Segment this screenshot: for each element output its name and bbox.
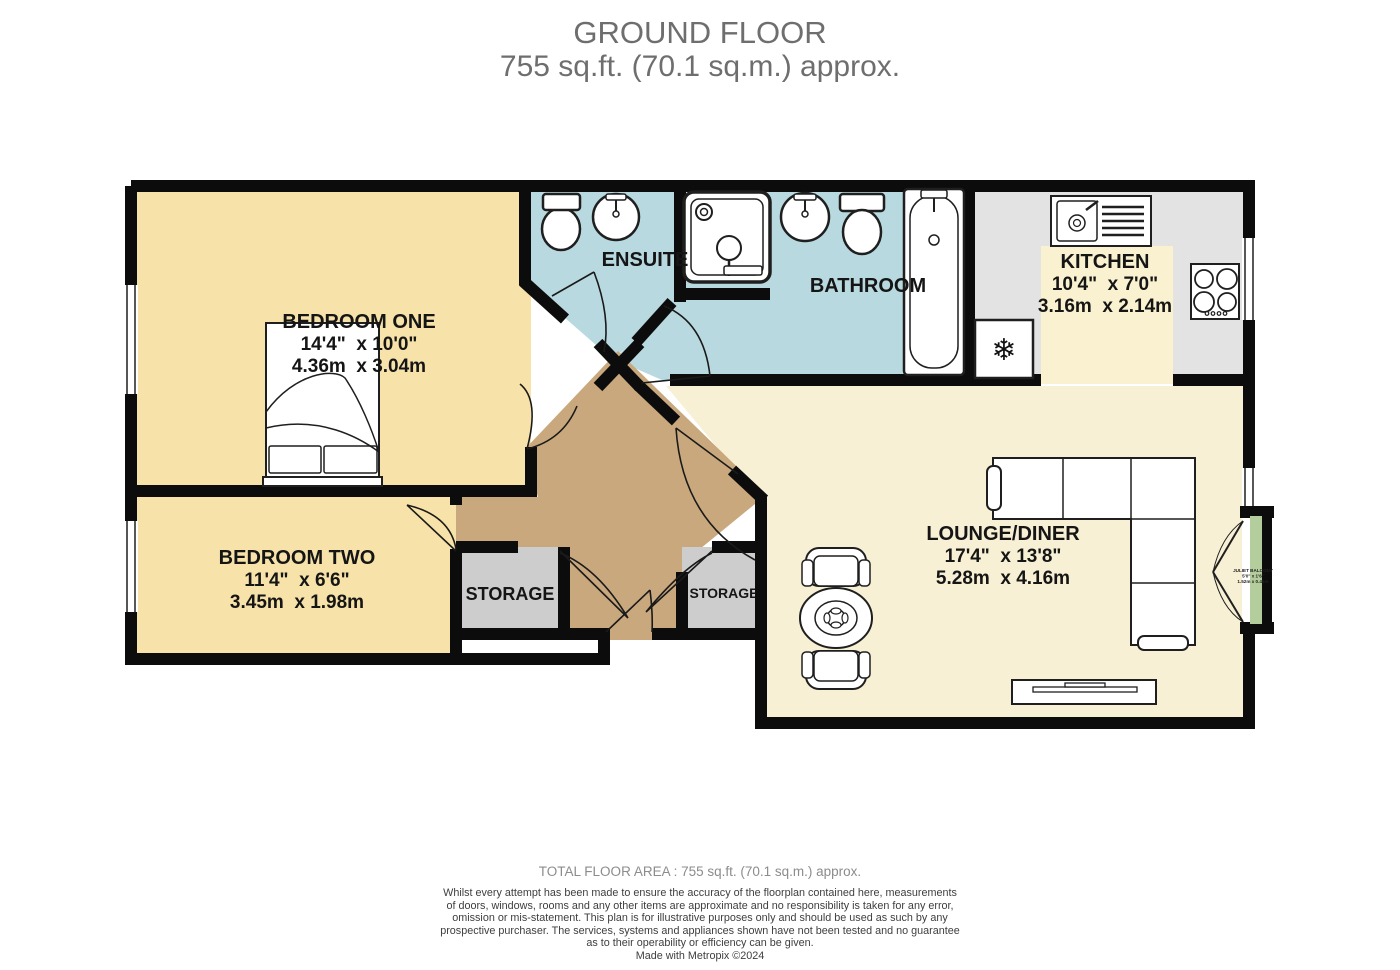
dining-table-icon <box>800 588 872 648</box>
kitchen-sink-icon <box>1051 196 1151 246</box>
label-kitchen-imperial: 10'4" x 7'0" <box>1052 274 1158 295</box>
label-kitchen: KITCHEN <box>1061 251 1150 273</box>
fridge-icon: ❄ <box>975 320 1033 378</box>
svg-text:❄: ❄ <box>991 334 1016 367</box>
bathroom-toilet-icon <box>840 194 884 254</box>
label-storage-right: STORAGE <box>690 585 759 601</box>
juliet-balcony-imperial: 5'0" x 1'6" <box>1242 574 1264 579</box>
label-bedroom-two: BEDROOM TWO <box>219 547 376 569</box>
window-lounge-icon <box>1242 468 1256 510</box>
credit-line: Made with Metropix ©2024 <box>0 950 1400 963</box>
bathroom-sink-icon <box>781 193 829 241</box>
total-floor-area: TOTAL FLOOR AREA : 755 sq.ft. (70.1 sq.m… <box>0 864 1400 879</box>
dining-chair-icon <box>802 548 870 586</box>
disclaimer-line: Whilst every attempt has been made to en… <box>0 887 1400 900</box>
ensuite-toilet-icon <box>542 194 580 250</box>
window-kitchen-icon <box>1242 238 1256 320</box>
disclaimer-line: as to their operability or efficiency ca… <box>0 937 1400 950</box>
label-bedroom-one-imperial: 14'4" x 10'0" <box>301 334 418 355</box>
ensuite-sink-icon <box>593 194 639 240</box>
disclaimer-line: of doors, windows, rooms and any other i… <box>0 900 1400 913</box>
dining-chair-icon <box>802 651 870 689</box>
hob-icon <box>1191 264 1239 319</box>
label-lounge-diner-imperial: 17'4" x 13'8" <box>945 546 1062 567</box>
label-kitchen-metric: 3.16m x 2.14m <box>1038 296 1172 317</box>
floorplan-page: GROUND FLOOR 755 sq.ft. (70.1 sq.m.) app… <box>0 0 1400 970</box>
juliet-balcony-label: JULIET BALCONY <box>1233 568 1273 573</box>
label-bathroom: BATHROOM <box>810 275 926 297</box>
label-bedroom-two-imperial: 11'4" x 6'6" <box>244 570 349 591</box>
tv-unit-icon <box>1012 680 1156 704</box>
label-ensuite: ENSUITE <box>602 249 689 271</box>
window-bedroom-one-icon <box>124 285 138 394</box>
label-bedroom-two-metric: 3.45m x 1.98m <box>230 592 364 613</box>
label-lounge-diner: LOUNGE/DINER <box>926 523 1080 545</box>
footer: TOTAL FLOOR AREA : 755 sq.ft. (70.1 sq.m… <box>0 864 1400 962</box>
floorplan-drawing: ❄ <box>0 0 1400 970</box>
juliet-balcony-metric: 1.52m x 0.46m <box>1237 579 1268 584</box>
disclaimer: Whilst every attempt has been made to en… <box>0 887 1400 962</box>
label-bedroom-one: BEDROOM ONE <box>282 311 435 333</box>
disclaimer-line: omission or mis-statement. This plan is … <box>0 912 1400 925</box>
window-bedroom-two-icon <box>124 521 138 612</box>
disclaimer-line: prospective purchaser. The services, sys… <box>0 925 1400 938</box>
label-storage-left: STORAGE <box>466 584 555 604</box>
label-lounge-diner-metric: 5.28m x 4.16m <box>936 568 1070 589</box>
label-bedroom-one-metric: 4.36m x 3.04m <box>292 356 426 377</box>
shower-icon <box>684 192 770 282</box>
